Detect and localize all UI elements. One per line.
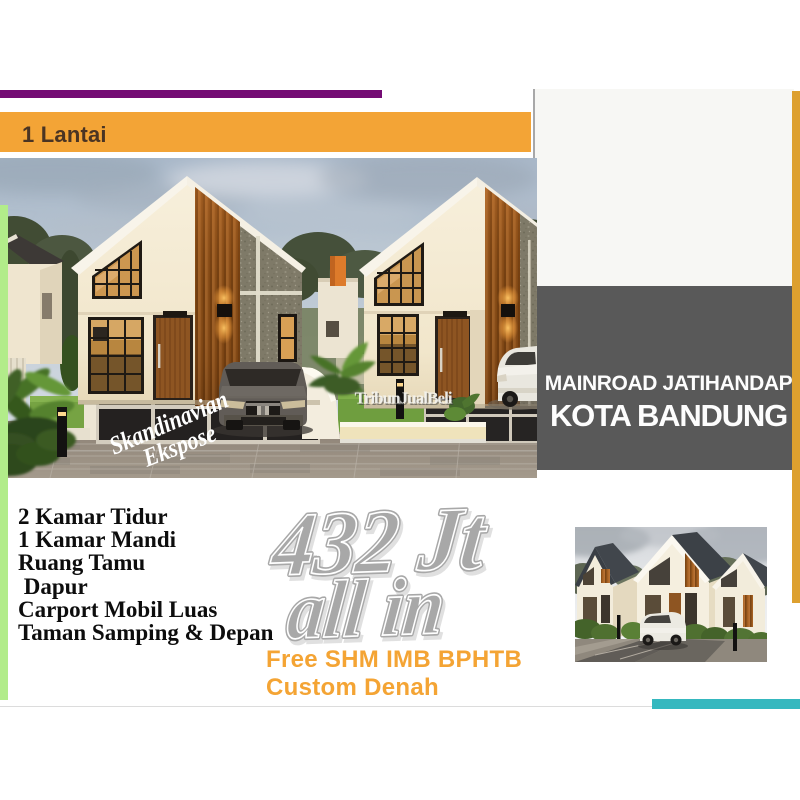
svg-text:TribunJualBeli: TribunJualBeli bbox=[355, 389, 453, 408]
svg-text:all in: all in bbox=[284, 560, 449, 655]
